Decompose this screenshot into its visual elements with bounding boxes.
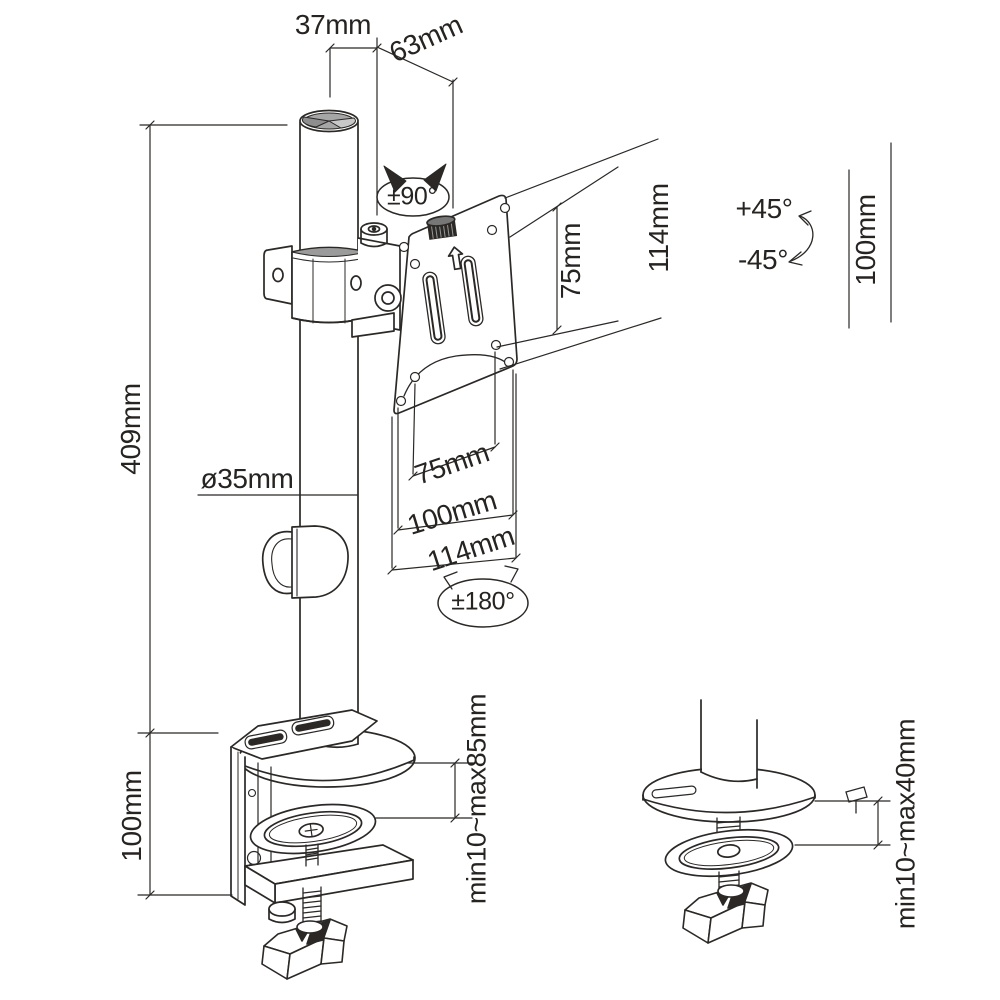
dim-pole-diameter-label: ø35mm bbox=[201, 465, 294, 493]
dim-grommet-range-label: min10~max40mm bbox=[893, 719, 920, 929]
grommet-wing-knob bbox=[683, 883, 768, 943]
dim-height-range-label: 100mm bbox=[852, 194, 880, 285]
angle-tilt-label: ±90° bbox=[387, 185, 437, 210]
line-art bbox=[0, 0, 1000, 1000]
angle-rotation-label: ±180° bbox=[451, 590, 514, 615]
pole-cap bbox=[302, 113, 355, 129]
grommet-mount bbox=[643, 695, 815, 896]
thumb-screw-knurled bbox=[426, 215, 457, 240]
dim-plate-114-right-label: 114mm bbox=[645, 183, 673, 272]
pole bbox=[300, 111, 358, 748]
swivel-45-arc bbox=[789, 211, 813, 265]
angle-swivel-up-label: +45° bbox=[735, 195, 792, 223]
dim-clamp-section-label: 100mm bbox=[118, 770, 146, 861]
cable-clip bbox=[263, 526, 348, 598]
dim-pole-length-label: 409mm bbox=[117, 383, 145, 474]
dim-top-offset-label: 37mm bbox=[295, 11, 371, 39]
clamp-wing-knob bbox=[262, 919, 347, 979]
dim-vesa-75-right-label: 75mm bbox=[557, 223, 585, 299]
dim-clamp-range-label: min10~max85mm bbox=[464, 694, 491, 904]
technical-drawing-monitor-mount: 37mm 63mm ±90° 75mm 114mm +45° -45° 100m… bbox=[0, 0, 1000, 1000]
angle-swivel-down-label: -45° bbox=[738, 246, 788, 274]
